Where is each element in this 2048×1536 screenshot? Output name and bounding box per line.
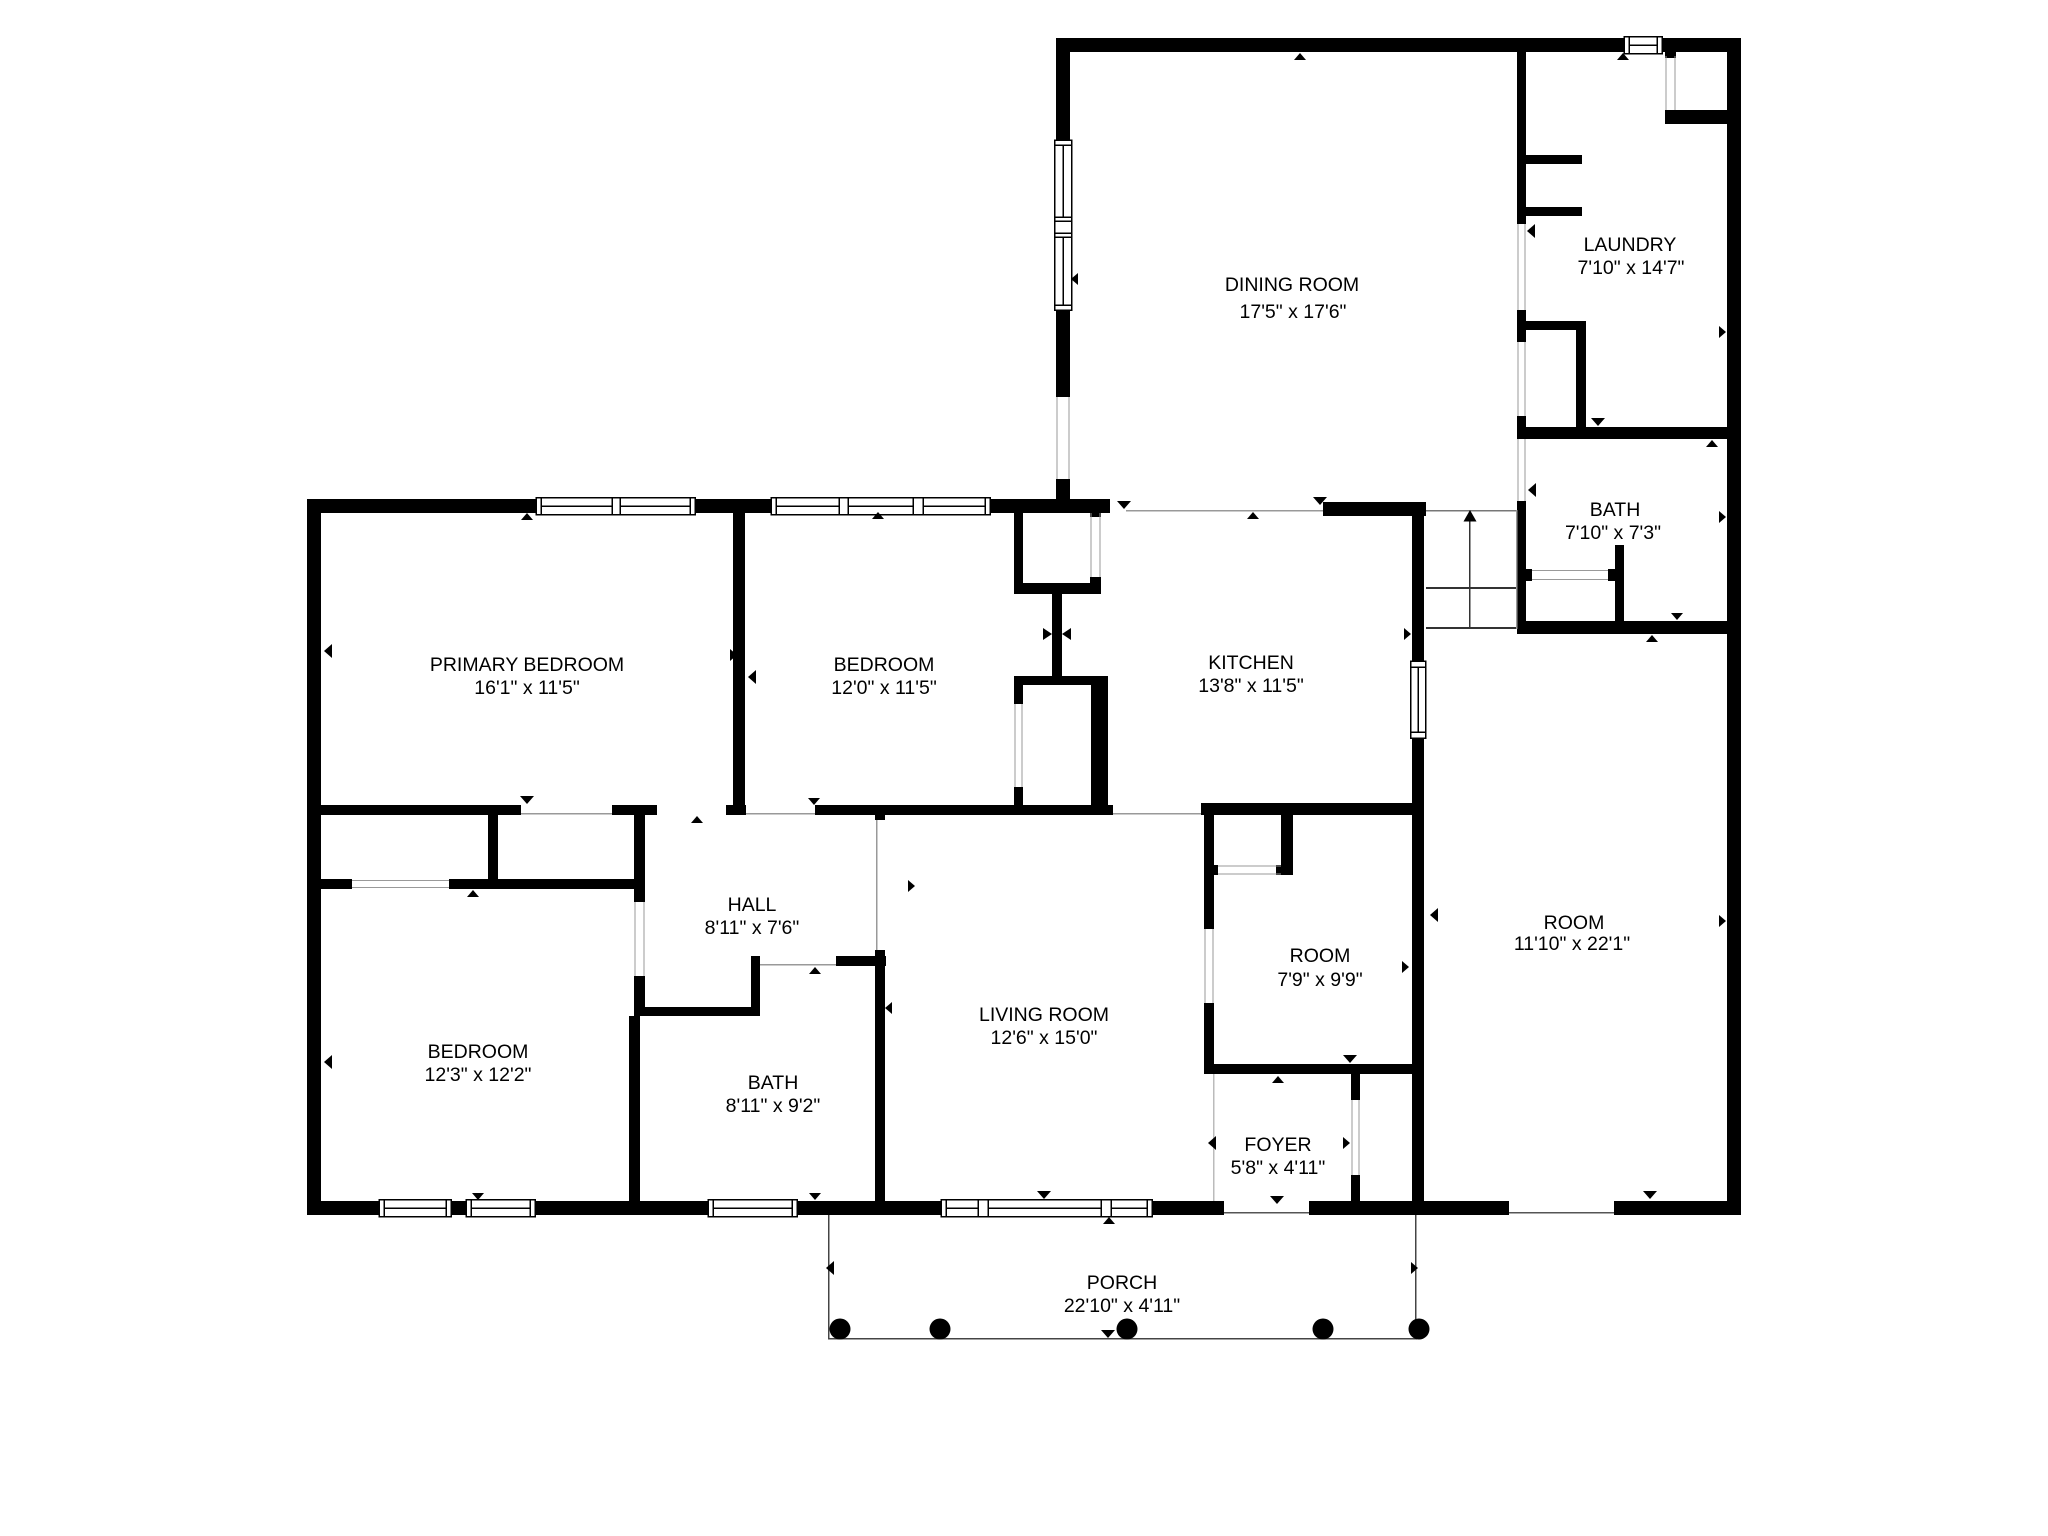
svg-text:ROOM: ROOM [1290,945,1351,967]
svg-text:8'11" x 7'6": 8'11" x 7'6" [705,917,800,939]
svg-text:5'8" x 4'11": 5'8" x 4'11" [1231,1157,1326,1179]
svg-text:LAUNDRY: LAUNDRY [1584,234,1677,256]
svg-text:12'6" x 15'0": 12'6" x 15'0" [991,1027,1098,1049]
svg-text:16'1" x 11'5": 16'1" x 11'5" [474,677,580,699]
svg-text:13'8" x 11'5": 13'8" x 11'5" [1198,675,1304,697]
svg-text:DINING ROOM: DINING ROOM [1225,274,1359,296]
svg-text:8'11" x 9'2": 8'11" x 9'2" [726,1095,821,1117]
svg-text:BEDROOM: BEDROOM [834,654,935,676]
svg-text:ROOM: ROOM [1544,912,1605,934]
svg-text:LIVING ROOM: LIVING ROOM [979,1004,1109,1026]
svg-text:BEDROOM: BEDROOM [428,1041,529,1063]
svg-text:7'9" x 9'9": 7'9" x 9'9" [1277,969,1362,991]
svg-text:KITCHEN: KITCHEN [1208,652,1294,674]
svg-text:BATH: BATH [1590,499,1641,521]
svg-text:FOYER: FOYER [1244,1134,1311,1156]
svg-text:BATH: BATH [748,1072,799,1094]
svg-text:PORCH: PORCH [1087,1272,1157,1294]
svg-text:7'10" x 14'7": 7'10" x 14'7" [1578,257,1685,279]
svg-text:PRIMARY BEDROOM: PRIMARY BEDROOM [430,654,624,676]
svg-text:HALL: HALL [728,894,777,916]
svg-text:11'10" x 22'1": 11'10" x 22'1" [1514,933,1630,955]
svg-text:22'10" x 4'11": 22'10" x 4'11" [1064,1295,1180,1317]
svg-text:7'10" x 7'3": 7'10" x 7'3" [1565,522,1661,544]
svg-text:17'5" x 17'6": 17'5" x 17'6" [1240,301,1347,323]
svg-text:12'3" x 12'2": 12'3" x 12'2" [425,1064,532,1086]
svg-text:12'0" x 11'5": 12'0" x 11'5" [831,677,937,699]
